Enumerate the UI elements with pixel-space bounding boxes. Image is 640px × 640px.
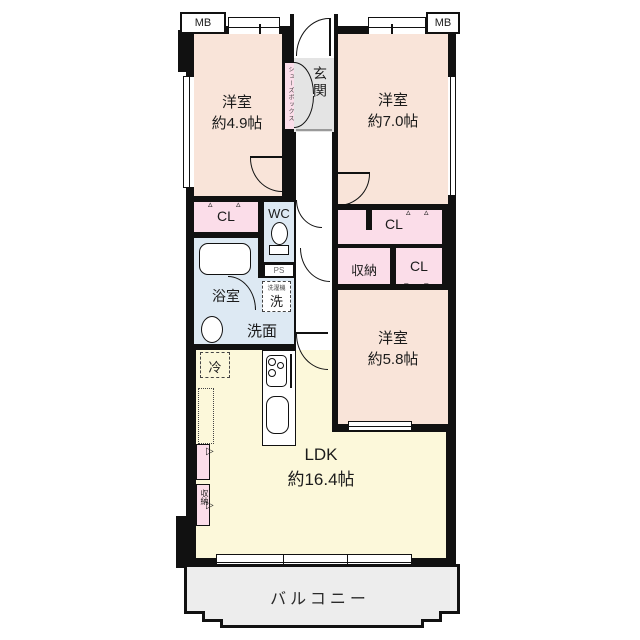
window-bedroom-3 xyxy=(348,421,412,431)
storage-mid-label: 収納 xyxy=(338,260,390,279)
burner-icon xyxy=(277,362,284,369)
burner-icon xyxy=(268,358,276,366)
bathtub-icon xyxy=(199,243,251,275)
washroom-label: 洗面 xyxy=(232,320,292,341)
room-size: 約5.8帖 xyxy=(333,349,453,370)
entry-jamb-right xyxy=(334,14,338,30)
kitchen-divider-line xyxy=(290,354,292,388)
wash-basin-icon xyxy=(201,316,223,343)
hallway xyxy=(296,132,332,350)
burner-icon xyxy=(268,369,276,377)
bedroom-2-door-leaf xyxy=(338,172,370,174)
room-bedroom-1-label: 洋室 約4.9帖 xyxy=(187,92,287,134)
bedroom-1-door-leaf xyxy=(250,156,282,158)
room-size: 約4.9帖 xyxy=(187,113,287,134)
balcony-floor-step1 xyxy=(205,611,439,619)
closet-3-label: CL xyxy=(396,258,442,274)
fold-door-mark: ▵ xyxy=(424,207,429,218)
window-mullion xyxy=(348,426,412,427)
meter-box-right-label: MB xyxy=(428,17,458,29)
washer-pan-icon: 洗濯機 洗 xyxy=(262,281,291,312)
meter-box-left-label: MB xyxy=(182,17,224,29)
counter-space-outline xyxy=(198,388,214,444)
pipe-space: PS xyxy=(264,264,294,277)
balcony-floor-step2 xyxy=(223,619,421,625)
fold-door-mark: ▷ xyxy=(206,500,214,511)
pipe-space-label: PS xyxy=(265,266,293,275)
window-tick xyxy=(259,24,261,34)
entry-jamb-left xyxy=(290,14,294,30)
window-mullion xyxy=(368,27,426,28)
front-door-leaf xyxy=(329,18,331,56)
room-name: 洋室 xyxy=(333,328,453,349)
room-ldk-label: LDK 約16.4帖 xyxy=(251,442,391,492)
kitchen-sink-icon xyxy=(266,396,289,434)
window-top-left xyxy=(228,17,280,35)
fold-door-mark: ▵ xyxy=(236,199,241,210)
room-bedroom-2-label: 洋室 約7.0帖 xyxy=(333,90,453,132)
room-name: 洋室 xyxy=(333,90,453,111)
window-tick xyxy=(391,24,393,34)
room-bedroom-3-label: 洋室 約5.8帖 xyxy=(333,328,453,370)
fridge-label: 冷 xyxy=(201,357,229,376)
fridge-space: 冷 xyxy=(200,352,230,378)
toilet-tank-icon xyxy=(269,245,289,255)
window-mullion xyxy=(216,562,412,563)
fold-door-mark: ▵ xyxy=(208,199,213,210)
washer-label: 洗 xyxy=(263,291,290,310)
window-top-right xyxy=(368,17,426,35)
wc-label: WC xyxy=(264,206,294,221)
floor-plan: MB MB 洋室 約4.9帖 シューズボックス 玄関 洋室 xyxy=(0,0,640,640)
genkan-step-line xyxy=(296,129,332,131)
ldk-door-leaf xyxy=(296,332,328,334)
toilet-bowl-icon xyxy=(271,222,288,245)
genkan-label: 玄関 xyxy=(310,66,330,100)
closet-2-label: CL xyxy=(372,216,416,232)
meter-box-right: MB xyxy=(426,12,460,34)
room-size: 約16.4帖 xyxy=(251,467,391,492)
window-mullion xyxy=(228,27,280,28)
room-name: 洋室 xyxy=(187,92,287,113)
fold-door-mark: ▷ xyxy=(206,446,214,457)
dashed-wall-segment xyxy=(414,424,442,426)
balcony-label: バルコニー xyxy=(240,585,400,609)
room-size: 約7.0帖 xyxy=(333,111,453,132)
meter-box-left: MB xyxy=(180,12,226,34)
closet-1-label: CL xyxy=(194,208,258,224)
fold-door-mark: ▵ xyxy=(406,207,411,218)
